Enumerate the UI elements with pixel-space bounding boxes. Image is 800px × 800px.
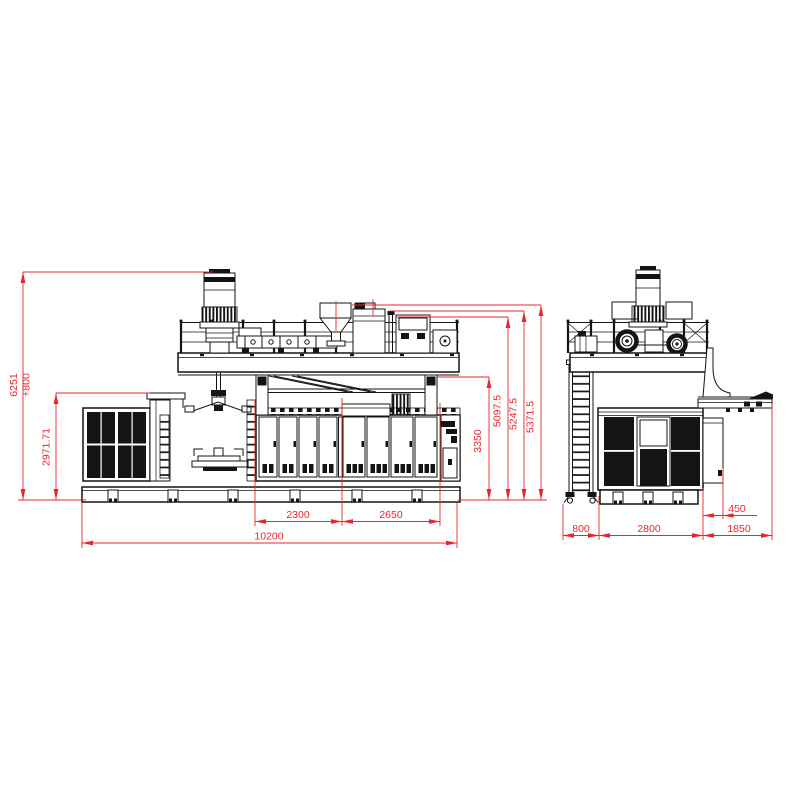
side-deck bbox=[570, 353, 710, 372]
dim-body-width: 2800 bbox=[637, 523, 661, 535]
front-end-panel bbox=[440, 415, 460, 481]
side-cabinet-box bbox=[703, 418, 723, 483]
front-electrical-cabinet bbox=[83, 408, 150, 481]
dim-conveyor-width: 1850 bbox=[727, 523, 751, 535]
front-clamp-station bbox=[147, 372, 256, 481]
side-drive-head bbox=[575, 266, 692, 353]
dim-pitch-left: 2300 bbox=[286, 509, 310, 521]
front-door-cabinets bbox=[256, 408, 460, 481]
dim-cabinet-height: 2971.71 bbox=[41, 428, 53, 466]
dim-total-length: 10200 bbox=[254, 531, 283, 543]
dim-side-cabinet-width: 450 bbox=[728, 503, 746, 515]
accumulator-unit bbox=[396, 315, 430, 353]
dim-frame-height: 3350 bbox=[472, 429, 484, 453]
blow-molding-machine-drawing: 6251 +800 2971.71 3350 5097.5 5247.5 537… bbox=[0, 0, 800, 800]
side-view bbox=[564, 266, 773, 504]
dim-ladder-width: 800 bbox=[572, 523, 590, 535]
takeoff-conveyor bbox=[698, 348, 773, 412]
side-body bbox=[598, 408, 703, 504]
gear-right bbox=[669, 336, 686, 353]
technical-drawing-page: 6251 +800 2971.71 3350 5097.5 5247.5 537… bbox=[0, 0, 800, 800]
dim-pitch-right: 2650 bbox=[379, 509, 403, 521]
gear-left bbox=[618, 332, 637, 351]
access-ladder bbox=[564, 360, 598, 503]
dim-total-height-a: 6251 bbox=[8, 373, 20, 397]
end-gearbox bbox=[433, 330, 457, 353]
dim-level-1: 5097.5 bbox=[492, 395, 504, 427]
extruder-motor bbox=[200, 269, 239, 353]
front-view bbox=[82, 269, 460, 502]
dim-total-height-b: +800 bbox=[21, 373, 33, 397]
dim-level-2: 5247.5 bbox=[508, 398, 520, 430]
dryer-unit bbox=[353, 303, 385, 353]
front-base-skid bbox=[82, 487, 460, 502]
dim-level-3: 5371.5 bbox=[525, 401, 537, 433]
